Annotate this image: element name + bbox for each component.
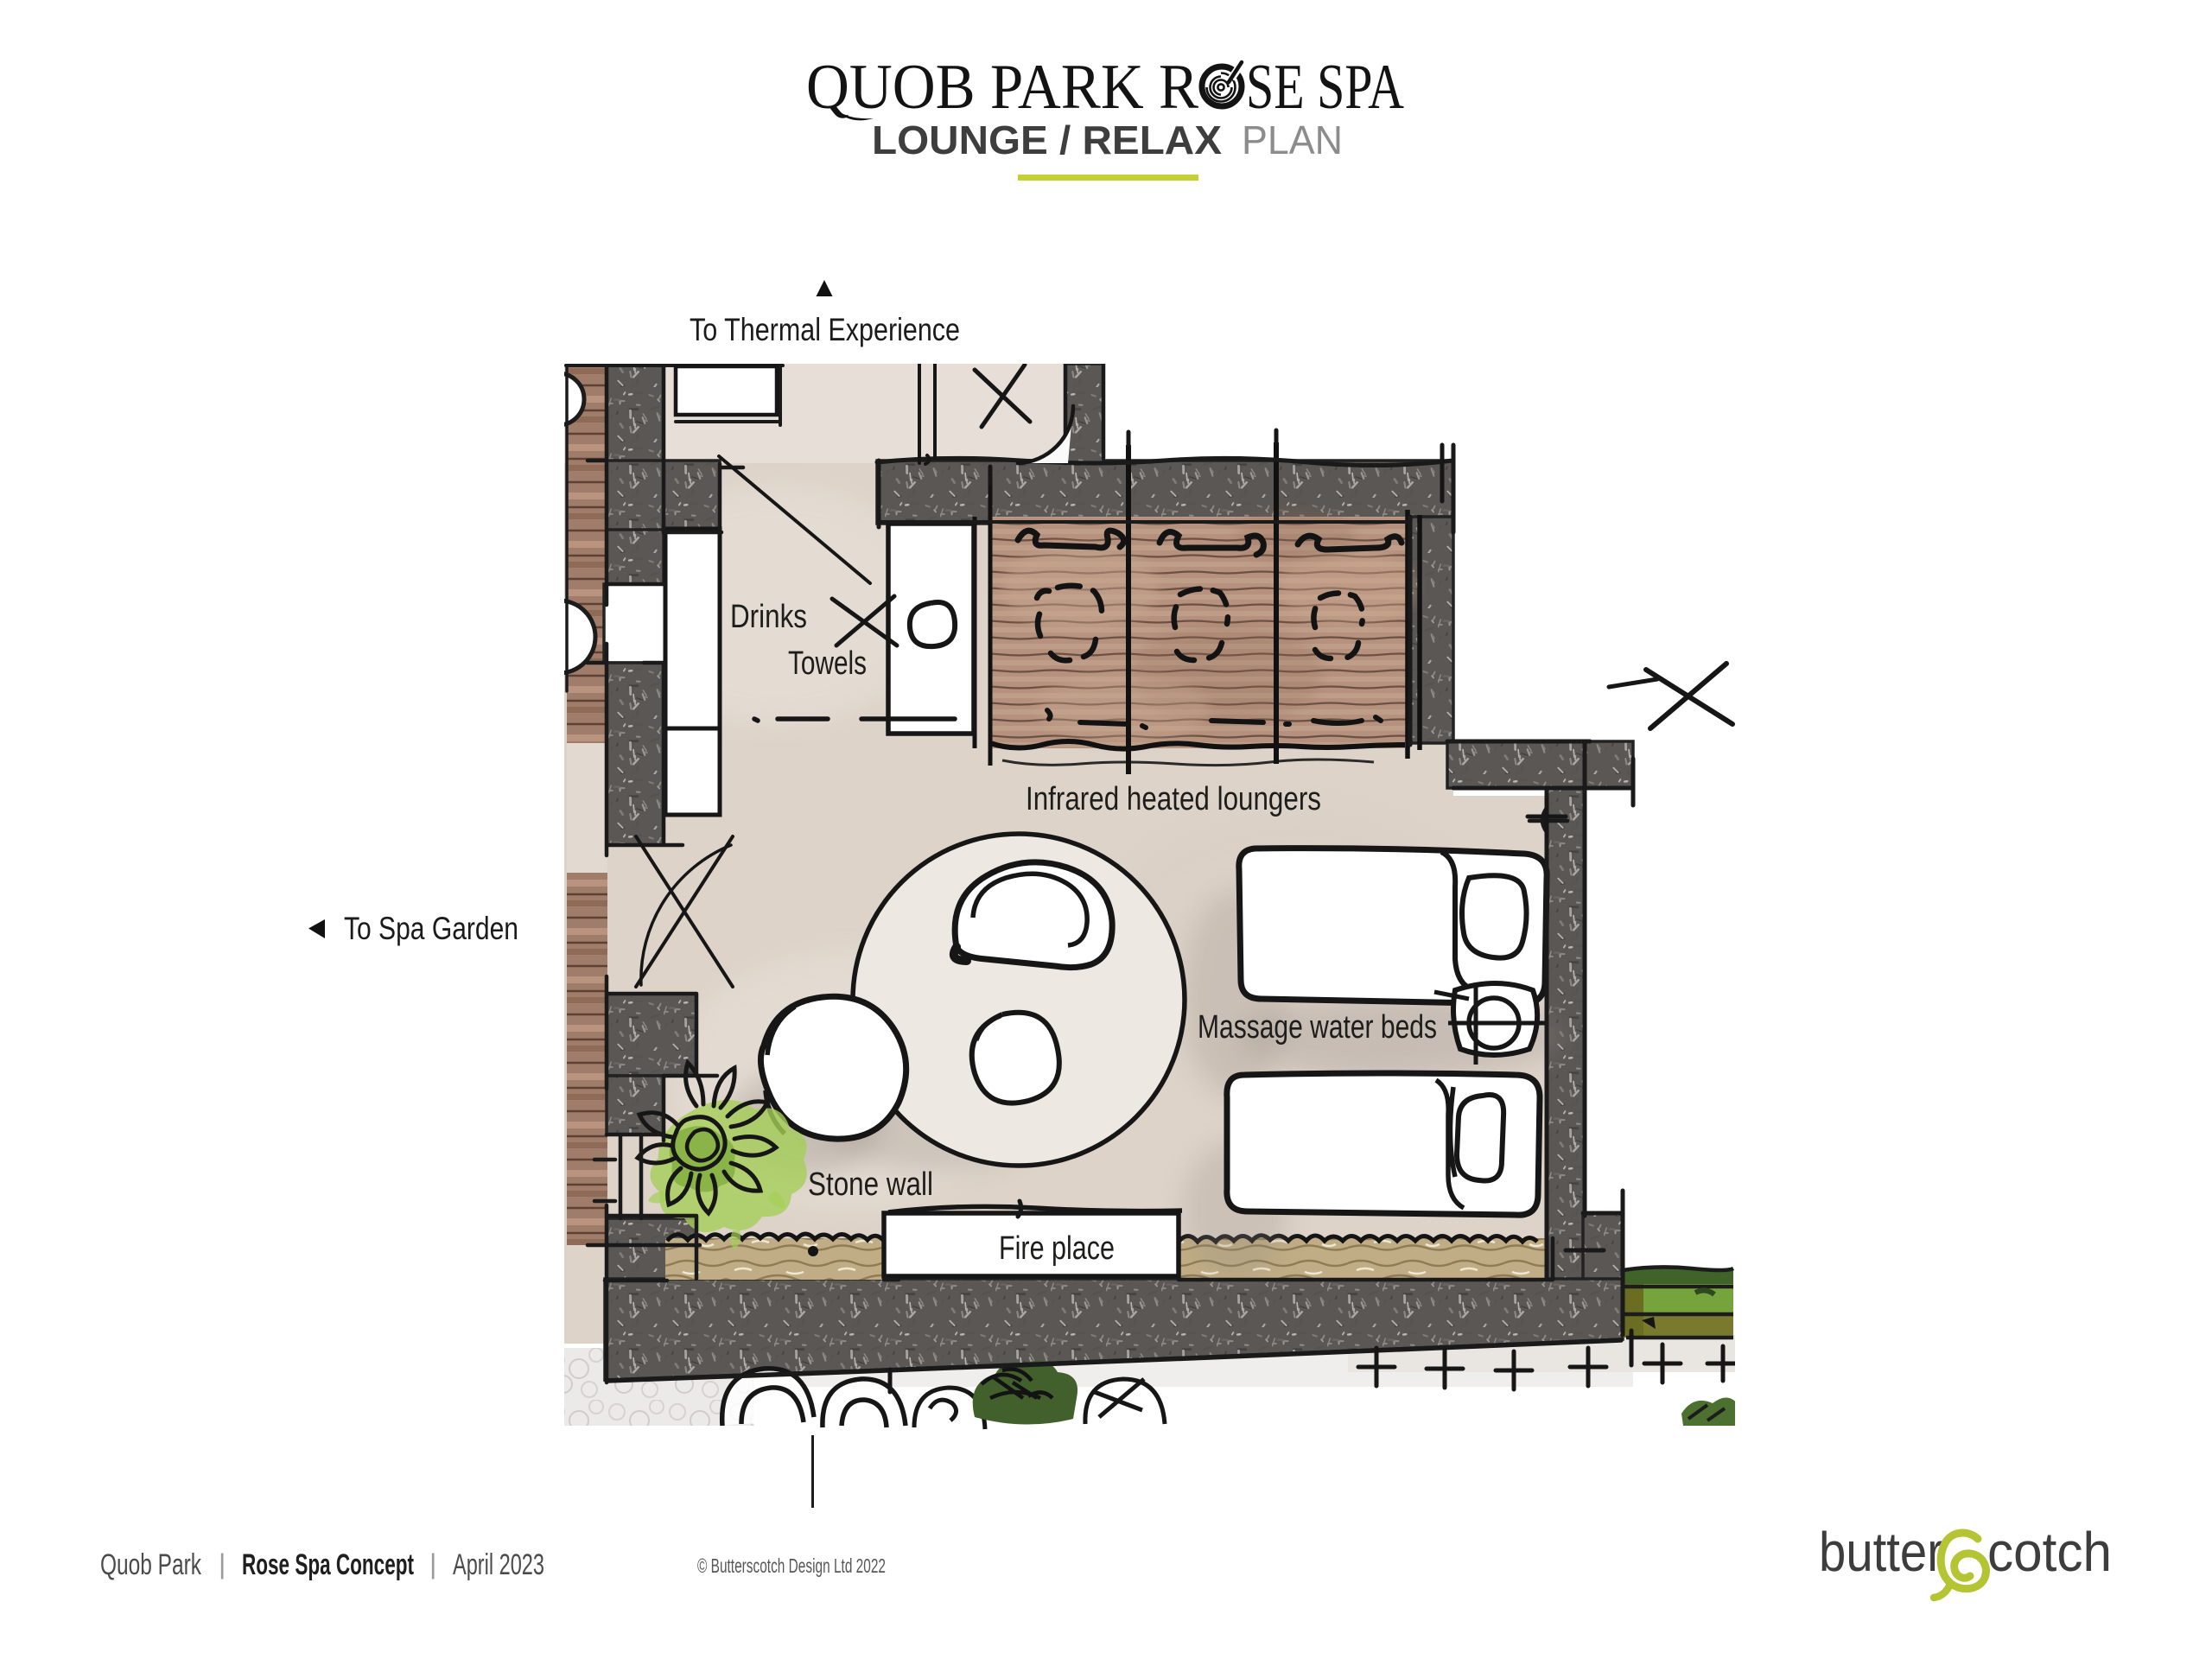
svg-text:butter: butter [1819, 1521, 1943, 1583]
svg-text:Massage water beds: Massage water beds [1198, 1009, 1437, 1046]
svg-text:LOUNGE / RELAX: LOUNGE / RELAX [872, 118, 1222, 162]
svg-text:Stone wall: Stone wall [808, 1166, 933, 1203]
svg-text:Quob Park: Quob Park [100, 1548, 202, 1581]
svg-text:|: | [219, 1548, 226, 1580]
svg-text:|: | [429, 1548, 436, 1580]
svg-text:To Thermal Experience: To Thermal Experience [690, 312, 960, 347]
svg-text:PLAN: PLAN [1242, 118, 1343, 162]
svg-text:QUOB PARK R: QUOB PARK R [806, 52, 1199, 123]
svg-text:To Spa Garden: To Spa Garden [344, 911, 518, 946]
svg-text:SE SPA: SE SPA [1246, 52, 1404, 123]
svg-text:Towels: Towels [788, 645, 867, 682]
svg-text:April 2023: April 2023 [453, 1548, 544, 1581]
svg-text:© Butterscotch Design Ltd 2022: © Butterscotch Design Ltd 2022 [697, 1554, 886, 1577]
svg-text:Drinks: Drinks [730, 599, 807, 635]
svg-text:Rose Spa Concept: Rose Spa Concept [242, 1548, 414, 1581]
svg-text:Fire place: Fire place [999, 1230, 1115, 1267]
svg-text:cotch: cotch [1987, 1521, 2112, 1583]
svg-text:Infrared heated loungers: Infrared heated loungers [1026, 781, 1321, 817]
